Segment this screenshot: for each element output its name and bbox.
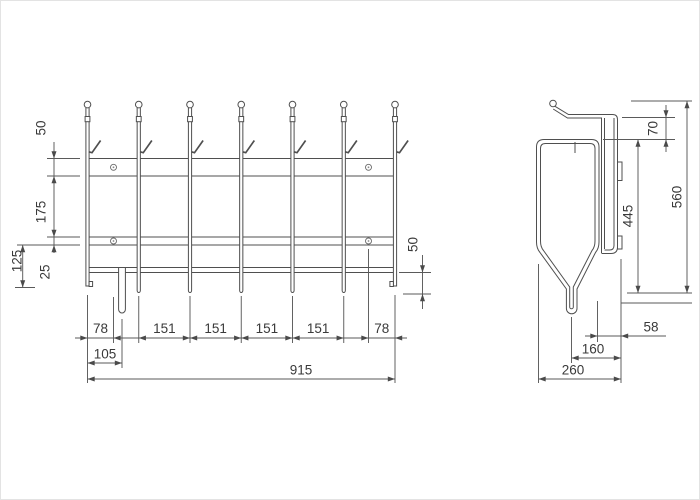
bar	[291, 108, 294, 293]
dim-label-rail-gap: 175	[34, 201, 49, 224]
side-view	[537, 100, 623, 314]
dim-label-hook-offset: 105	[94, 347, 117, 362]
dim-label-mid-to-bottom: 125	[10, 250, 25, 273]
basket-profile	[537, 140, 600, 314]
dim-label-chain-151-2: 151	[204, 321, 227, 336]
basket-outer-wire	[537, 140, 600, 314]
edge-bar-left-foot	[89, 282, 93, 287]
dim-label-basket-height: 445	[621, 205, 636, 228]
dim-label-mid-rail: 25	[38, 264, 53, 279]
dim-label-basket-to-wall: 58	[643, 320, 658, 335]
drop-pin	[119, 268, 126, 313]
front-view	[84, 101, 408, 313]
dim-label-chain-78-right: 78	[374, 321, 389, 336]
dim-label-chain-78-left: 78	[93, 321, 108, 336]
dim-label-chain-151-1: 151	[153, 321, 176, 336]
edge-bar-right	[393, 108, 396, 286]
dim-label-rail-height: 50	[34, 120, 49, 135]
wire-rack-drawing: 50 175 25 125 50 78 151 151 151 151 78 1…	[1, 1, 700, 500]
edge-bar-right-foot	[390, 282, 394, 287]
dim-label-chain-151-3: 151	[256, 321, 279, 336]
bar	[137, 108, 140, 292]
bar-ball-tops	[84, 101, 398, 108]
technical-drawing-page: 50 175 25 125 50 78 151 151 151 151 78 1…	[0, 0, 700, 500]
bar	[342, 108, 345, 293]
dim-label-total-width: 915	[290, 363, 313, 378]
dim-label-bar-overhang: 50	[406, 237, 421, 252]
edge-bar-left	[86, 108, 89, 286]
dim-label-chain-151-4: 151	[307, 321, 330, 336]
bar	[188, 108, 191, 292]
dim-label-total-height: 560	[670, 186, 685, 209]
dim-label-stub-to-wall: 160	[582, 342, 605, 357]
dim-label-hook-to-basket: 70	[646, 121, 661, 136]
dim-label-total-depth: 260	[562, 363, 585, 378]
bar-sleeves	[85, 117, 397, 122]
bar	[240, 108, 243, 293]
front-view-dimensions: 50 175 25 125 50 78 151 151 151 151 78 1…	[10, 120, 432, 383]
vertical-bars	[86, 108, 397, 293]
